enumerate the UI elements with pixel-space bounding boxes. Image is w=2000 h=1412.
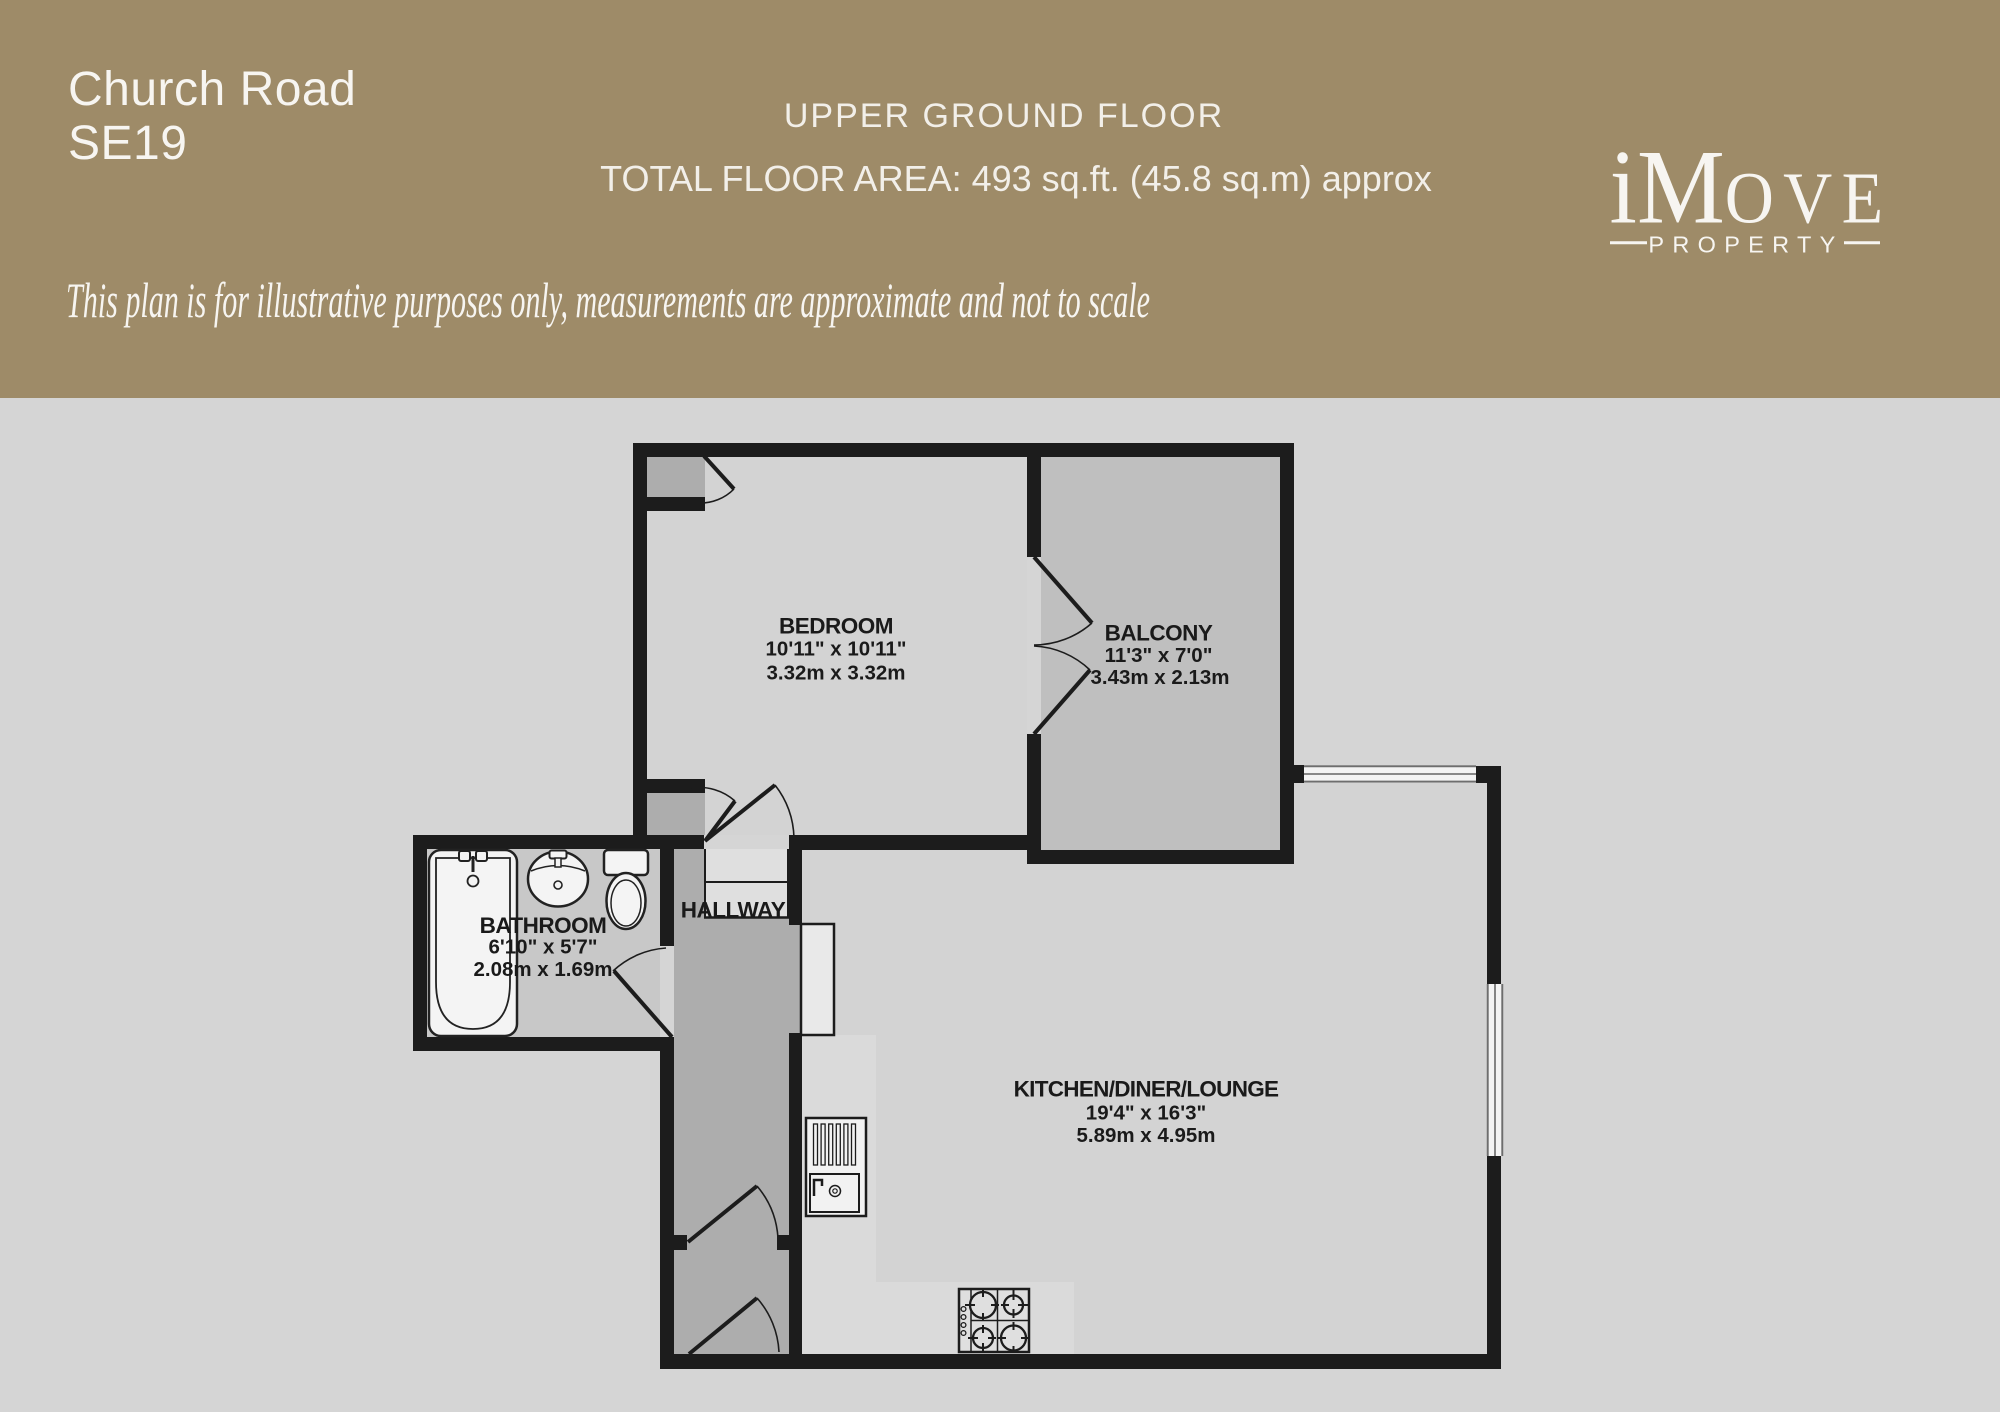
svg-text:11'3" x 7'0": 11'3" x 7'0" xyxy=(1105,644,1213,667)
svg-text:3.43m x 2.13m: 3.43m x 2.13m xyxy=(1090,666,1229,689)
svg-text:5.89m x 4.95m: 5.89m x 4.95m xyxy=(1076,1124,1215,1147)
svg-text:3.32m x 3.32m: 3.32m x 3.32m xyxy=(766,662,905,685)
svg-text:UPPER GROUND FLOOR: UPPER GROUND FLOOR xyxy=(784,97,1224,135)
svg-text:SE19: SE19 xyxy=(68,117,187,170)
svg-text:Church Road: Church Road xyxy=(68,63,356,116)
svg-text:BATHROOM: BATHROOM xyxy=(480,913,607,938)
svg-text:BALCONY: BALCONY xyxy=(1105,621,1213,646)
svg-text:2.08m x 1.69m: 2.08m x 1.69m xyxy=(473,958,612,981)
svg-text:This plan is for illustrative: This plan is for illustrative purposes o… xyxy=(66,272,1150,328)
svg-text:19'4" x 16'3": 19'4" x 16'3" xyxy=(1086,1102,1206,1125)
svg-text:BEDROOM: BEDROOM xyxy=(779,614,893,639)
svg-text:10'11" x 10'11": 10'11" x 10'11" xyxy=(766,638,907,661)
svg-text:PROPERTY: PROPERTY xyxy=(1648,232,1843,258)
svg-text:TOTAL FLOOR AREA: 493 sq.ft. (: TOTAL FLOOR AREA: 493 sq.ft. (45.8 sq.m)… xyxy=(600,158,1432,199)
svg-text:KITCHEN/DINER/LOUNGE: KITCHEN/DINER/LOUNGE xyxy=(1014,1077,1279,1102)
svg-text:6'10" x 5'7": 6'10" x 5'7" xyxy=(489,936,598,959)
svg-text:HALLWAY: HALLWAY xyxy=(681,898,786,923)
